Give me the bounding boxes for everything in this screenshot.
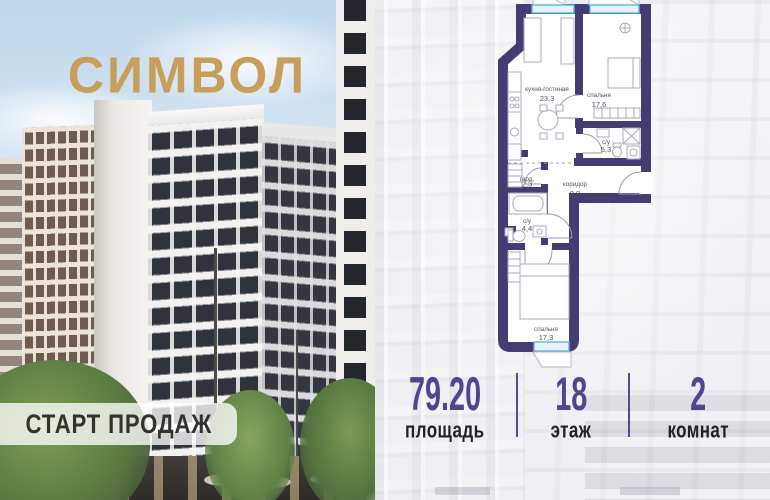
stat-rooms-value: 2 <box>690 370 706 420</box>
room-area: 23,3 <box>540 94 555 103</box>
stat-area-value: 79.20 <box>409 370 481 420</box>
stat-area: 79.20 площадь <box>375 370 515 450</box>
stats-divider <box>516 373 518 437</box>
room-name: спальня <box>534 326 558 333</box>
stat-area-label: площадь <box>405 419 484 444</box>
entry-opening <box>639 172 653 194</box>
room-area: 2,3 <box>522 180 532 189</box>
sales-start-label: СТАРТ ПРОДАЖ <box>25 409 212 440</box>
stat-rooms: 2 комнат <box>627 370 770 450</box>
building-photo: СИМВОЛ СТАРТ ПРОДАЖ <box>0 0 375 500</box>
stat-floor-value: 18 <box>555 370 587 420</box>
room-area: 9,0 <box>570 189 580 198</box>
apartment-panel: кухня-гостиная 23,3 спальня 17,6 с/у 5,3… <box>375 0 770 500</box>
room-area: 5,3 <box>601 145 611 154</box>
room-area: 4,4 <box>522 224 532 233</box>
apartment-stats: 79.20 площадь 18 этаж 2 комнат <box>375 370 770 450</box>
stat-rooms-label: комнат <box>668 419 730 444</box>
sales-start-badge[interactable]: СТАРТ ПРОДАЖ <box>0 403 237 445</box>
room-name: кухня-гостиная <box>525 86 569 93</box>
stat-floor-label: этаж <box>551 419 592 444</box>
stat-floor: 18 этаж <box>515 370 627 450</box>
project-title: СИМВОЛ <box>0 50 375 101</box>
room-area: 17,3 <box>539 333 554 342</box>
bottom-balcony <box>533 352 571 367</box>
room-area: 17,6 <box>592 100 607 109</box>
room-name: коридор <box>563 181 588 188</box>
stats-divider <box>628 373 630 437</box>
listing-card: СИМВОЛ СТАРТ ПРОДАЖ <box>0 0 770 500</box>
room-name: спальня <box>587 92 611 99</box>
